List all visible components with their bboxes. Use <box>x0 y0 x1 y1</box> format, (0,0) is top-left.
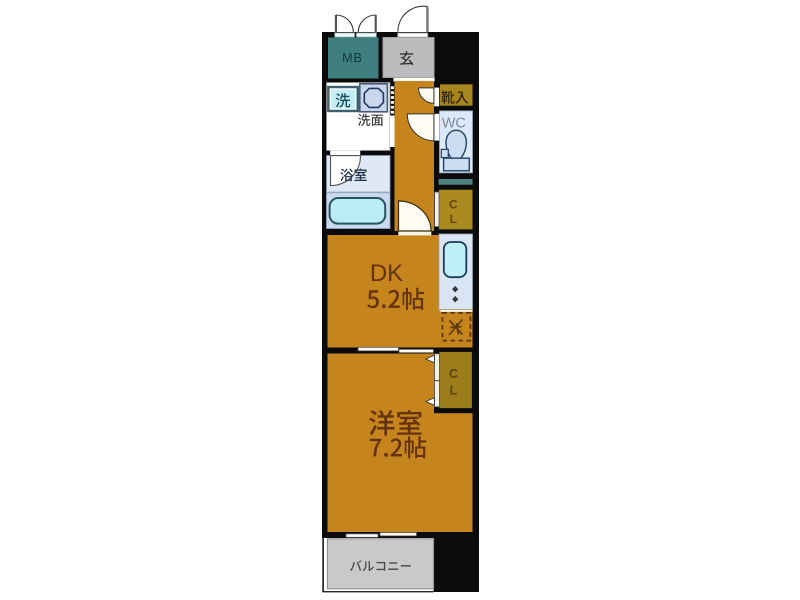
svg-text:MB: MB <box>342 51 363 65</box>
svg-text:WC: WC <box>442 116 466 132</box>
svg-text:C: C <box>449 197 458 211</box>
svg-text:L: L <box>450 212 457 226</box>
svg-text:L: L <box>450 384 458 398</box>
svg-text:DK: DK <box>370 260 403 287</box>
svg-text:C: C <box>449 367 458 381</box>
